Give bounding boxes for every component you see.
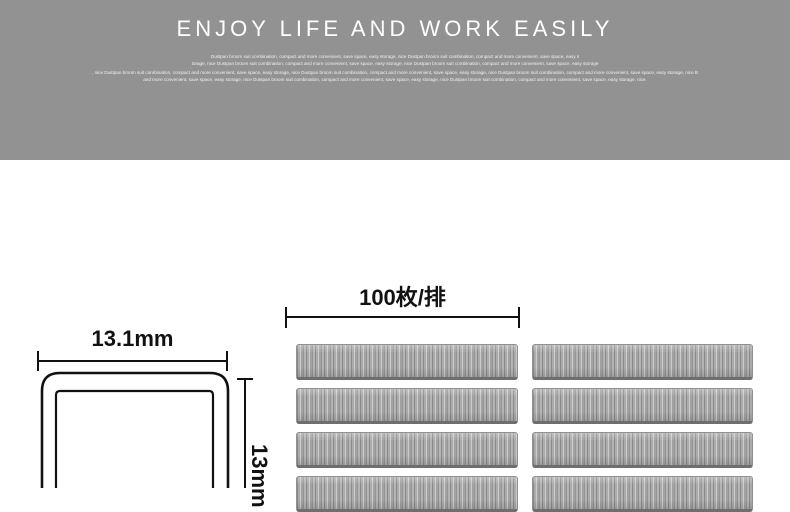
- staple-strip-grid: [296, 344, 753, 512]
- banner-paragraph-2-line-1: , nice Dustpan broom suit combination, c…: [92, 69, 698, 76]
- staple-strip: [296, 344, 518, 380]
- banner-title: ENJOY LIFE AND WORK EASILY: [0, 16, 790, 42]
- strip-count-label: 100枚/排: [286, 280, 519, 312]
- strip-dimension-line: [286, 316, 519, 318]
- banner-paragraph-2: , nice Dustpan broom suit combination, c…: [92, 69, 698, 83]
- staple-strip: [532, 388, 753, 424]
- banner-paragraph-1-line-1: Dustpan broom suit combination, compact …: [192, 53, 599, 60]
- width-dimension-line: [38, 360, 227, 362]
- banner-paragraph-2-line-2: and more convenient, save space, easy st…: [92, 76, 698, 83]
- staple-strip: [532, 476, 753, 512]
- staple-strip: [296, 432, 518, 468]
- staple-strip: [296, 388, 518, 424]
- product-detail-page: { "banner": { "background_color": "#9292…: [0, 0, 790, 488]
- strip-dimension-tick-left: [285, 307, 287, 328]
- staple-width-label: 13.1mm: [38, 326, 227, 352]
- staple-inner-contour: [56, 391, 213, 488]
- staple-strip: [532, 344, 753, 380]
- banner-paragraph-1-line-2: torage, nice Dustpan broom suit combinat…: [192, 60, 599, 67]
- strip-dimension-tick-right: [518, 307, 520, 328]
- staple-strip: [532, 432, 753, 468]
- banner: ENJOY LIFE AND WORK EASILY Dustpan broom…: [0, 0, 790, 160]
- staple-strip: [296, 476, 518, 512]
- banner-paragraph-1: Dustpan broom suit combination, compact …: [192, 53, 599, 67]
- staple-height-label: 13mm: [246, 444, 272, 508]
- staple-outline-drawing: [30, 365, 280, 488]
